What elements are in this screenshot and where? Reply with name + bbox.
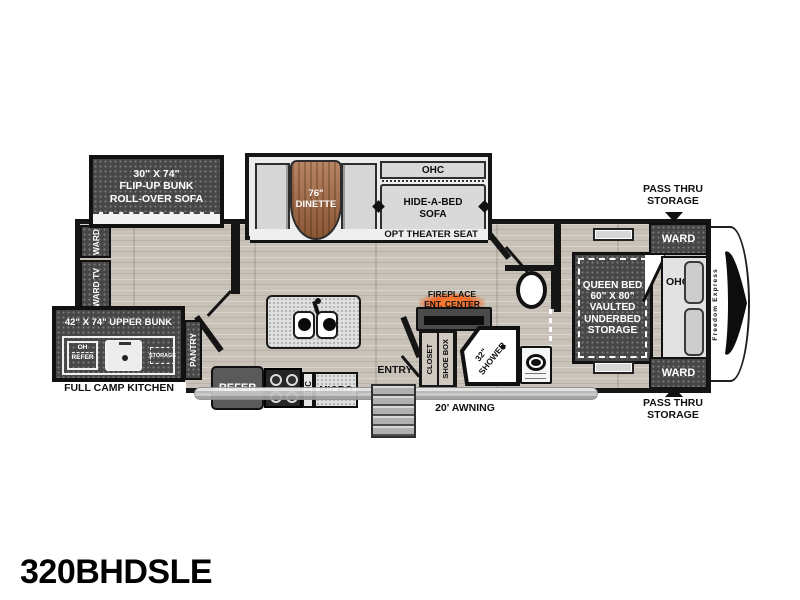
closet-shoebox: CLOSET SHOE BOX	[419, 330, 457, 388]
queen-bed: QUEEN BED 60" X 80" VAULTED UNDERBED STO…	[572, 252, 653, 364]
ward-front-bottom: WARD	[649, 357, 708, 389]
vanity-sink	[526, 354, 546, 371]
bath-vanity	[520, 346, 552, 384]
bedroom-ohc: OHC	[661, 256, 708, 360]
camp-sink-drain	[122, 355, 128, 361]
pass-thru-bottom-label: PASS THRU STORAGE	[620, 398, 726, 421]
floorplan-page: Freedom Express WARD WARD TV 30" X 74" F…	[0, 0, 800, 600]
ward-front-top: WARD	[649, 223, 708, 255]
dinette-table: 76" DINETTE	[290, 160, 342, 240]
pass-thru-top-label: PASS THRU STORAGE	[620, 184, 726, 207]
vanity-drawer-lines	[525, 373, 546, 379]
theater-seat-label: OPT THEATER SEAT	[384, 230, 478, 240]
bedroom-window-top	[593, 228, 634, 241]
camp-kitchen-slideout: 42" X 74" UPPER BUNK OH REFER STORAGE	[52, 306, 185, 382]
sofa-dotted-line	[382, 180, 484, 182]
entry-label: ENTRY	[372, 365, 418, 377]
camp-kitchen-label: FULL CAMP KITCHEN	[48, 383, 190, 395]
island-sink-left	[293, 311, 315, 339]
bedroom-wall	[554, 222, 561, 312]
island-sink-right	[316, 311, 338, 339]
tv-screen	[424, 316, 484, 325]
shoe-box: SHOE BOX	[439, 333, 454, 385]
camp-storage: STORAGE	[150, 347, 175, 364]
ohc-door-top	[684, 261, 704, 304]
bunk-slide-label: 30" X 74" FLIP-UP BUNK ROLL-OVER SOFA	[93, 159, 220, 214]
pass-thru-top-arrow-icon	[665, 212, 683, 222]
bunk-slideout: 30" X 74" FLIP-UP BUNK ROLL-OVER SOFA	[89, 155, 224, 228]
bunk-slide-floor-strip	[93, 212, 220, 224]
pass-thru-bottom-arrow-icon	[665, 387, 683, 397]
pantry: PANTRY	[184, 320, 202, 380]
ward-rear-top: WARD	[80, 225, 111, 258]
front-cap-swoosh-graphic	[722, 238, 750, 368]
dinette-bench-left	[255, 163, 290, 235]
dinette-bench-right	[341, 163, 377, 235]
hide-a-bed-sofa: HIDE-A-BED SOFA	[380, 184, 486, 233]
awning-label: 20' AWNING	[420, 403, 510, 415]
bedroom-window-bottom	[593, 361, 634, 374]
island-faucet-head	[315, 298, 321, 304]
ohc-door-bottom	[684, 308, 704, 356]
model-title: 320BHDSLE	[20, 553, 212, 592]
camp-sink	[105, 340, 142, 371]
closet: CLOSET	[422, 333, 439, 385]
wall-bunkroom	[231, 224, 240, 294]
upper-bunk-label: 42" X 74" UPPER BUNK	[65, 317, 172, 328]
theater-seat-band: OPT THEATER SEAT	[250, 229, 488, 243]
sofa-ohc: OHC	[380, 161, 486, 179]
shower: 32" SHOWER	[459, 325, 521, 387]
toilet	[516, 271, 547, 309]
camp-kitchen-counter: OH REFER STORAGE	[62, 336, 175, 375]
camp-sink-faucet	[119, 342, 131, 345]
oh-refer: OH REFER	[67, 341, 98, 370]
queen-bed-label: QUEEN BED 60" X 80" VAULTED UNDERBED STO…	[583, 280, 642, 336]
entry-steps	[371, 384, 416, 438]
brand-text: Freedom Express	[707, 240, 723, 368]
